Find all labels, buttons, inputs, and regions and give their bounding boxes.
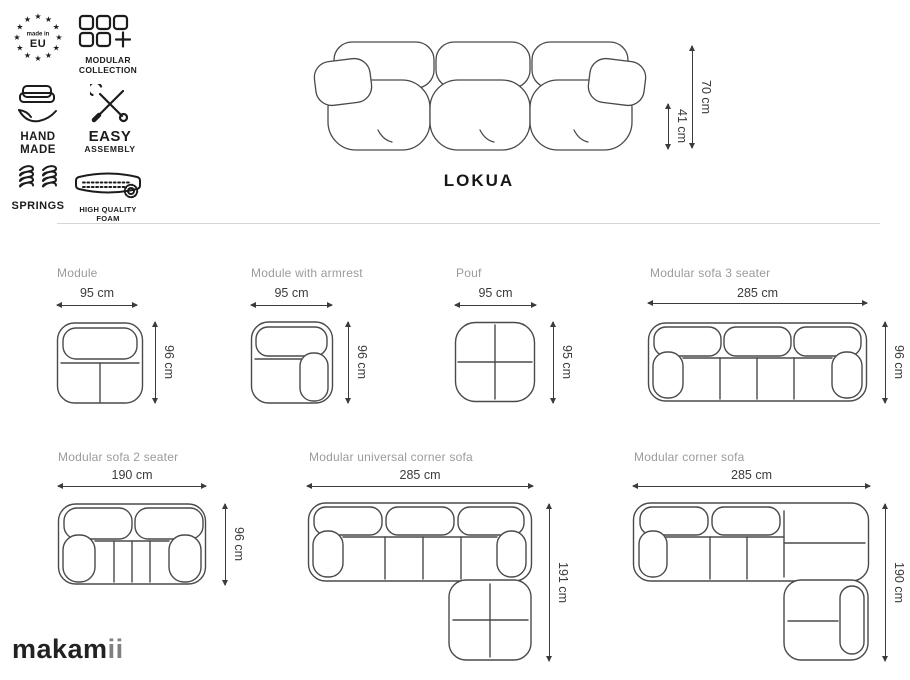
high-quality-foam-icon [75,170,141,200]
config-title: Modular universal corner sofa [309,450,473,464]
svg-text:★: ★ [13,33,20,42]
config-title: Modular sofa 2 seater [58,450,178,464]
depth-arrow [549,504,550,661]
brand-logo-accent: ii [108,634,124,664]
depth-arrow [348,322,349,403]
svg-text:★: ★ [24,51,31,60]
brand-logo-main: makam [12,634,108,664]
springs-icon [16,162,60,196]
badge-easy-assembly: EASY ASSEMBLY [80,84,140,155]
brand-logo: makamii [12,634,124,665]
svg-text:★: ★ [53,44,60,53]
svg-text:EU: EU [30,38,46,50]
depth-dim: 96 cm [892,322,906,403]
config-title: Module with armrest [251,266,363,280]
svg-text:★: ★ [34,54,41,63]
module-armrest-top-view-drawing [250,319,334,406]
badge-springs: SPRINGS [10,162,66,211]
config-title: Modular corner sofa [634,450,745,464]
svg-text:★: ★ [55,33,62,42]
depth-dim: 96 cm [162,322,176,403]
width-arrow [251,305,332,306]
width-arrow [57,305,137,306]
corner-sofa-top-view-drawing [632,501,870,662]
badge-label: HIGH QUALITY [72,205,144,214]
width-dim: 95 cm [57,286,137,300]
config-title: Module [57,266,98,280]
config-title: Pouf [456,266,482,280]
modular-collection-icon [78,14,138,50]
made-in-eu-icon: ★ ★ ★ ★ ★ ★ ★ ★ ★ ★ ★ ★ made in EU [12,10,64,64]
width-dim: 95 cm [251,286,332,300]
badge-high-quality-foam: HIGH QUALITY FOAM [72,170,144,223]
svg-text:made in: made in [27,32,50,38]
product-spec-sheet: ★ ★ ★ ★ ★ ★ ★ ★ ★ ★ ★ ★ made in EU MODUL… [0,0,910,680]
badge-modular-collection: MODULAR COLLECTION [76,14,140,75]
width-arrow [307,486,533,487]
sofa-front-view-drawing [312,40,648,154]
module-top-view-drawing [56,320,144,406]
width-dim: 190 cm [58,468,206,482]
badge-label: COLLECTION [76,65,140,75]
depth-arrow [885,322,886,403]
easy-assembly-icon [90,84,130,124]
svg-text:★: ★ [53,23,60,32]
width-arrow [455,305,536,306]
svg-text:★: ★ [34,12,41,21]
svg-text:★: ★ [16,44,23,53]
badge-label: EASY [80,129,140,144]
svg-text:★: ★ [24,15,31,24]
depth-dim: 96 cm [232,504,246,585]
badge-hand-made: HAND MADE [10,84,66,156]
depth-dim: 190 cm [892,504,906,661]
total-height-arrow [692,46,693,148]
hand-made-icon [15,84,61,126]
config-title: Modular sofa 3 seater [650,266,770,280]
depth-arrow [155,322,156,403]
divider [57,223,880,224]
width-arrow [58,486,206,487]
width-dim: 95 cm [455,286,536,300]
badge-label: ASSEMBLY [80,144,140,155]
badge-made-in-eu: ★ ★ ★ ★ ★ ★ ★ ★ ★ ★ ★ ★ made in EU [12,10,64,69]
depth-dim: 95 cm [560,322,574,403]
seat-height-dim: 41 cm [675,101,689,151]
depth-arrow [553,322,554,403]
badge-label: MODULAR [76,55,140,65]
sofa-2-seater-top-view-drawing [57,502,207,586]
width-dim: 285 cm [648,286,867,300]
total-height-dim: 70 cm [699,46,713,148]
depth-arrow [225,504,226,585]
badge-label: HAND [10,131,66,144]
width-dim: 285 cm [307,468,533,482]
sofa-3-seater-top-view-drawing [647,321,868,403]
badge-label: SPRINGS [10,201,66,211]
depth-dim: 191 cm [556,504,570,661]
svg-text:★: ★ [45,51,52,60]
width-arrow [633,486,870,487]
width-arrow [648,303,867,304]
universal-corner-sofa-top-view-drawing [307,501,533,663]
depth-arrow [885,504,886,661]
width-dim: 285 cm [633,468,870,482]
badge-label: FOAM [72,214,144,223]
depth-dim: 96 cm [355,322,369,403]
svg-text:★: ★ [45,15,52,24]
pouf-top-view-drawing [454,321,536,403]
product-name: LOKUA [379,171,579,191]
seat-height-arrow [668,104,669,149]
svg-text:★: ★ [16,23,23,32]
badge-label: MADE [10,144,66,157]
